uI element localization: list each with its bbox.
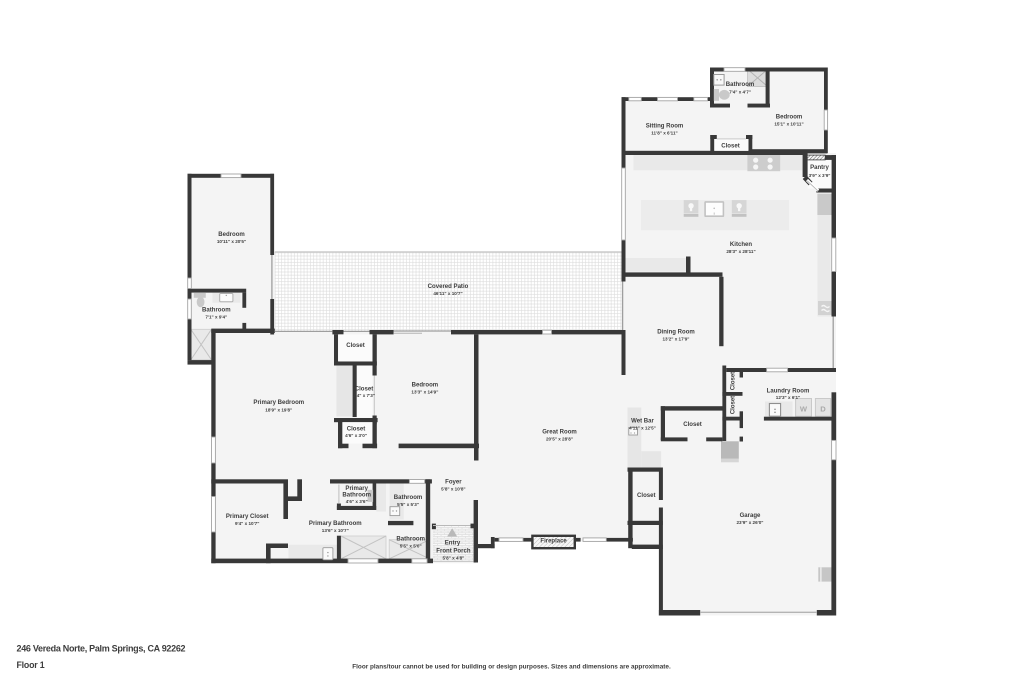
svg-text:Bathroom: Bathroom — [394, 495, 423, 501]
svg-text:13'2" x 17'9": 13'2" x 17'9" — [663, 337, 690, 342]
svg-text:Closet: Closet — [721, 143, 739, 149]
svg-text:Closet: Closet — [731, 372, 737, 390]
svg-text:5'8" x 4'8": 5'8" x 4'8" — [442, 556, 464, 561]
svg-text:10'11" x 20'5": 10'11" x 20'5" — [217, 239, 246, 244]
svg-text:Foyer: Foyer — [445, 480, 462, 486]
svg-text:Floor 1: Floor 1 — [17, 660, 45, 670]
svg-text:Laundry Room: Laundry Room — [767, 388, 810, 394]
svg-text:Primary: Primary — [345, 486, 368, 492]
svg-text:Bedroom: Bedroom — [776, 114, 803, 120]
svg-text:Bathroom: Bathroom — [396, 537, 425, 543]
svg-text:Great Room: Great Room — [542, 429, 577, 435]
svg-text:Closet: Closet — [347, 426, 365, 432]
svg-text:Bedroom: Bedroom — [412, 383, 439, 389]
svg-text:4'11" x 12'5": 4'11" x 12'5" — [629, 426, 656, 431]
svg-text:Floor plans/tour cannot be use: Floor plans/tour cannot be used for buil… — [352, 664, 671, 671]
svg-text:Fireplace: Fireplace — [540, 539, 567, 545]
svg-text:9'4" x 10'7": 9'4" x 10'7" — [235, 521, 259, 526]
svg-text:246 Vereda Norte, Palm Springs: 246 Vereda Norte, Palm Springs, CA 92262 — [17, 644, 186, 654]
svg-text:Garage: Garage — [740, 513, 761, 519]
svg-text:13'3" x 14'9": 13'3" x 14'9" — [411, 390, 438, 395]
svg-text:Primary Bathroom: Primary Bathroom — [309, 521, 362, 527]
svg-text:Kitchen: Kitchen — [730, 242, 752, 248]
svg-text:Closet: Closet — [637, 493, 655, 499]
svg-text:2'4" x 7'3": 2'4" x 7'3" — [353, 393, 375, 398]
svg-text:23'9" x 26'0": 23'9" x 26'0" — [737, 520, 764, 525]
svg-text:7'1" x 9'4": 7'1" x 9'4" — [205, 315, 227, 320]
svg-text:Closet: Closet — [683, 422, 701, 428]
svg-text:18'9" x 19'8": 18'9" x 19'8" — [265, 407, 292, 412]
svg-text:46'11" x 10'7": 46'11" x 10'7" — [433, 291, 462, 296]
svg-text:4'6" x 3'0": 4'6" x 3'0" — [345, 433, 367, 438]
svg-text:Bathroom: Bathroom — [342, 493, 371, 499]
svg-text:Bathroom: Bathroom — [202, 308, 231, 314]
svg-text:7'4" x 4'7": 7'4" x 4'7" — [729, 89, 751, 94]
svg-text:Wet Bar: Wet Bar — [631, 419, 654, 425]
svg-text:4'6" x 3'6": 4'6" x 3'6" — [346, 499, 368, 504]
svg-text:Bedroom: Bedroom — [218, 232, 245, 238]
svg-text:20'5" x 28'8": 20'5" x 28'8" — [546, 437, 573, 442]
svg-text:Front Porch: Front Porch — [436, 549, 471, 555]
svg-text:Closet: Closet — [346, 343, 364, 349]
svg-text:Pantry: Pantry — [810, 165, 829, 171]
svg-text:Entry: Entry — [445, 541, 461, 547]
svg-text:15'1" x 10'11": 15'1" x 10'11" — [774, 122, 803, 127]
svg-text:Closet: Closet — [355, 386, 373, 392]
svg-text:Primary Bedroom: Primary Bedroom — [253, 400, 304, 406]
svg-text:13'6" x 10'7": 13'6" x 10'7" — [322, 528, 349, 533]
svg-text:D: D — [820, 405, 826, 414]
svg-text:5'5" x 5'0": 5'5" x 5'0" — [400, 544, 422, 549]
svg-text:W: W — [800, 405, 808, 414]
svg-text:12'3" x 6'1": 12'3" x 6'1" — [776, 395, 800, 400]
svg-text:5'5" x 5'3": 5'5" x 5'3" — [397, 502, 419, 507]
svg-text:5'8" x 10'8": 5'8" x 10'8" — [441, 487, 465, 492]
svg-text:Closet: Closet — [731, 396, 737, 414]
svg-text:Bathroom: Bathroom — [726, 82, 755, 88]
svg-text:Sitting Room: Sitting Room — [646, 123, 684, 129]
svg-text:Covered Patio: Covered Patio — [428, 284, 469, 290]
svg-text:Dining Room: Dining Room — [657, 330, 695, 336]
svg-text:28'3" x 28'11": 28'3" x 28'11" — [726, 249, 755, 254]
svg-text:3'9" x 3'9": 3'9" x 3'9" — [809, 173, 831, 178]
svg-text:11'8" x 6'11": 11'8" x 6'11" — [651, 130, 677, 135]
svg-text:Primary Closet: Primary Closet — [226, 514, 269, 520]
